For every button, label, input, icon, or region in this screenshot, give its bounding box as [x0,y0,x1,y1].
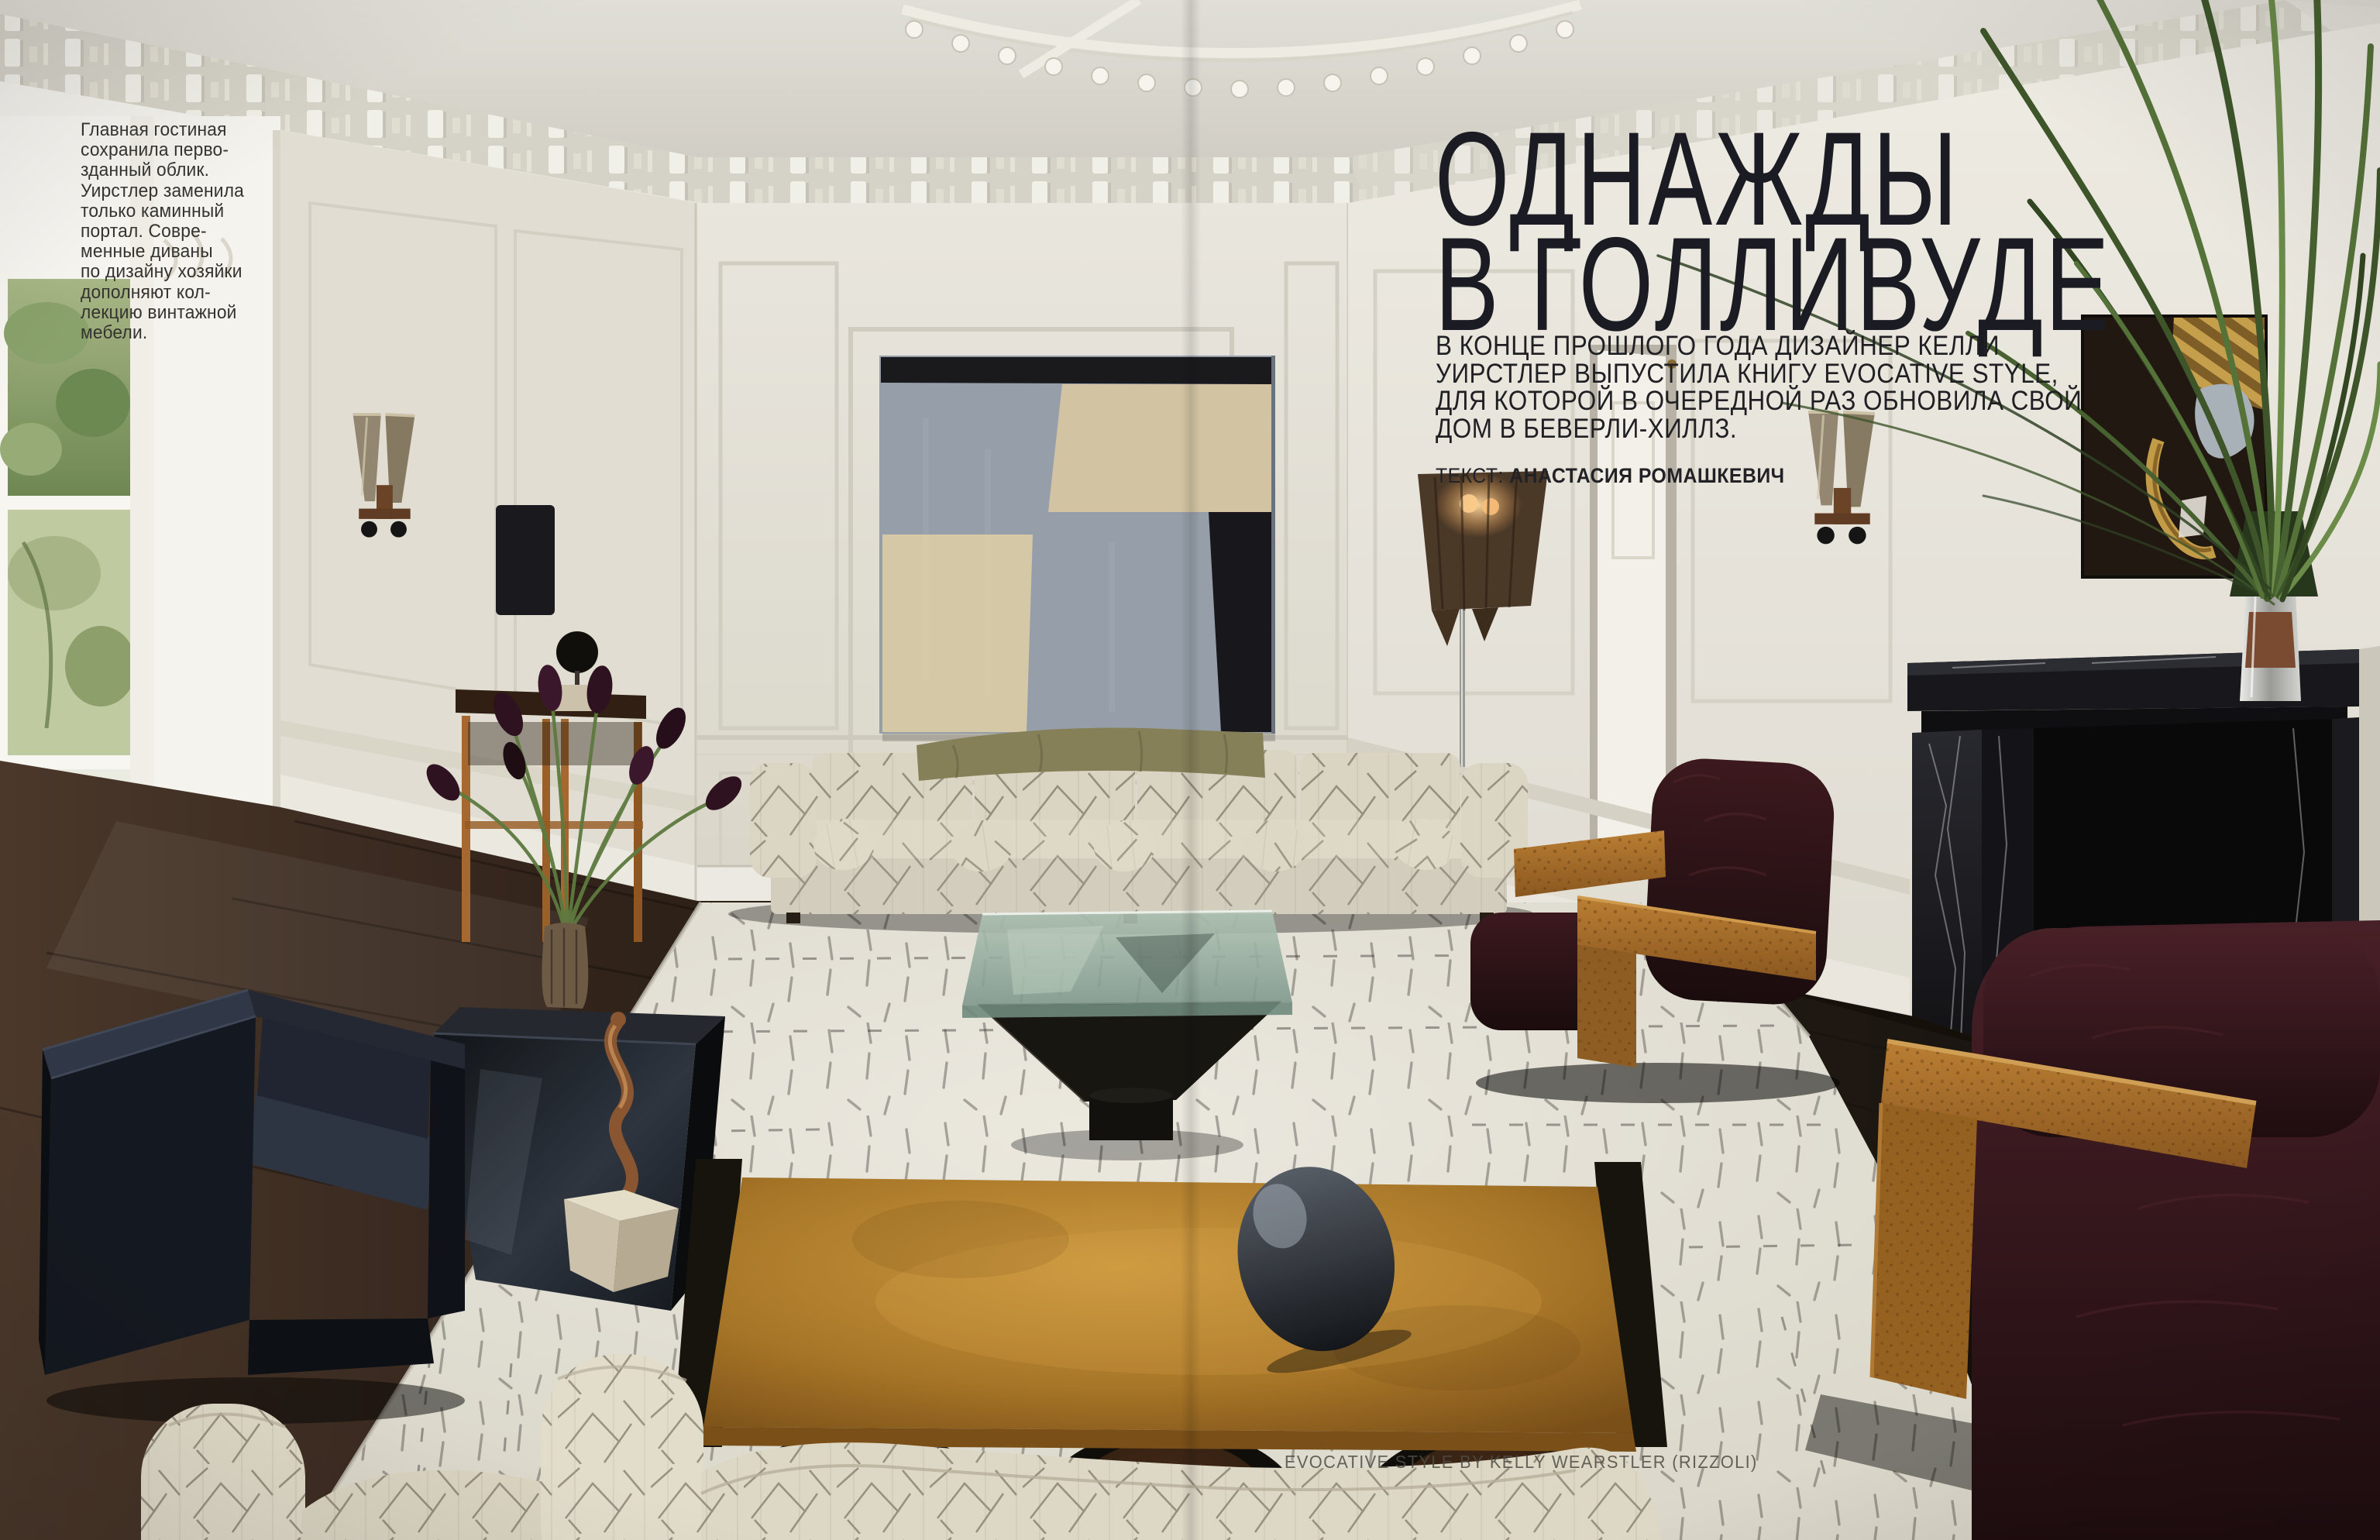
standfirst-line: ДОМ В БЕВЕРЛИ-ХИЛЛЗ. [1436,415,2082,443]
caption-line: зданный облик. [81,160,244,180]
photo-credit: EVOCATIVE STYLE BY KELLY WEARSTLER (RIZZ… [1285,1452,1758,1473]
magazine-spread: Главная гостиная сохранила перво- зданны… [0,0,2380,1540]
caption-line: только каминный [81,201,244,222]
caption-line: мебели. [81,323,244,343]
article-headline: ОДНАЖДЫ В ГОЛЛИВУДЕ [1435,126,2111,337]
article-byline: ТЕКСТ: АНАСТАСИЯ РОМАШКЕВИЧ [1436,464,1785,488]
caption-line: портал. Совре- [81,222,244,242]
standfirst-line: В КОНЦЕ ПРОШЛОГО ГОДА ДИЗАЙНЕР КЕЛЛИ [1436,332,2082,360]
caption-line: Главная гостиная [81,120,244,140]
standfirst-line: ДЛЯ КОТОРОЙ В ОЧЕРЕДНОЙ РАЗ ОБНОВИЛА СВО… [1436,387,2082,415]
photo-caption: Главная гостиная сохранила перво- зданны… [81,120,244,343]
headline-line-2: В ГОЛЛИВУДЕ [1435,232,2111,337]
caption-line: менные диваны [81,242,244,262]
byline-label: ТЕКСТ: [1436,464,1504,487]
caption-line: дополняют кол- [81,283,244,303]
caption-line: по дизайну хозяйки [81,262,244,282]
caption-line: сохранила перво- [81,140,244,160]
caption-line: Уирстлер заменила [81,181,244,201]
caption-line: лекцию винтажной [81,303,244,323]
standfirst-line: УИРСТЛЕР ВЫПУСТИЛА КНИГУ EVOCATIVE STYLE… [1436,360,2082,388]
article-standfirst: В КОНЦЕ ПРОШЛОГО ГОДА ДИЗАЙНЕР КЕЛЛИ УИР… [1436,332,2082,442]
byline-author: АНАСТАСИЯ РОМАШКЕВИЧ [1509,464,1784,487]
